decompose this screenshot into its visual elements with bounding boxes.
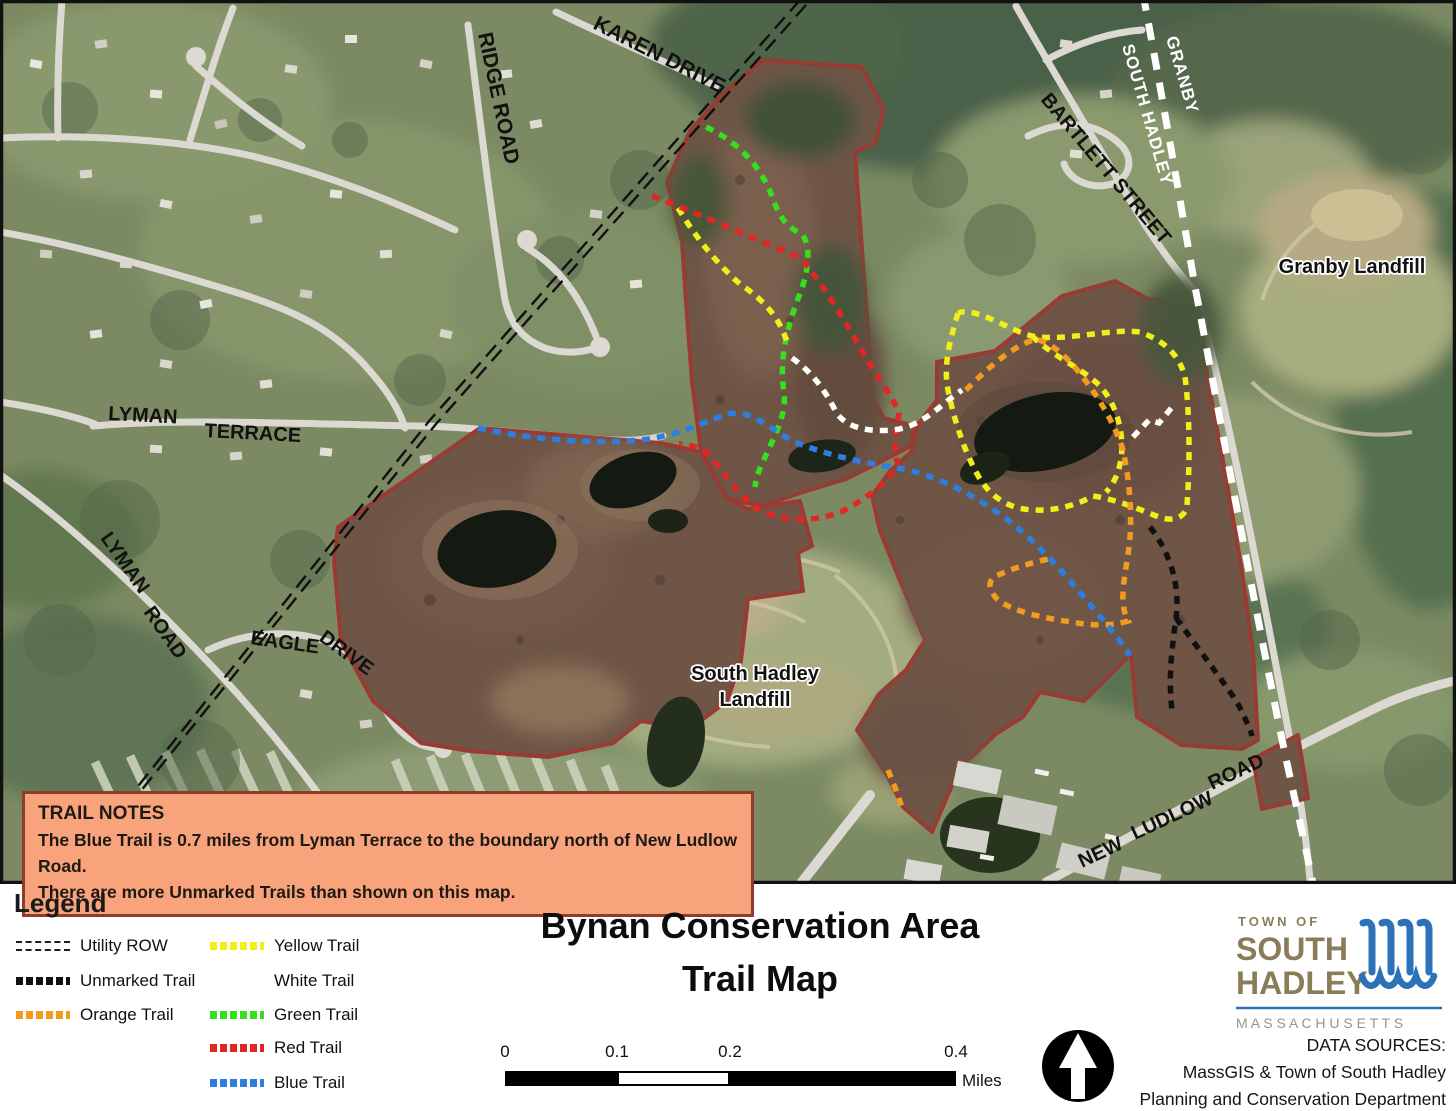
label-sh-landfill-1: South Hadley [691, 663, 820, 685]
blue-trail-swatch [210, 1079, 264, 1087]
data-sources-line3: Planning and Conservation Department [1050, 1086, 1446, 1111]
legend-label: White Trail [274, 971, 354, 991]
legend-label: Utility ROW [80, 936, 168, 956]
trail-notes-line2: There are more Unmarked Trails than show… [38, 879, 738, 905]
data-sources-line1: DATA SOURCES: [1050, 1032, 1446, 1059]
scale-segment-3 [730, 1071, 956, 1086]
data-sources: DATA SOURCES: MassGIS & Town of South Ha… [1050, 1032, 1446, 1111]
label-granby-landfill: Granby Landfill [1279, 256, 1426, 278]
yellow-trail-swatch [210, 942, 264, 950]
unmarked-trail-swatch [16, 977, 70, 985]
data-sources-line2: MassGIS & Town of South Hadley [1050, 1059, 1446, 1086]
map: KAREN DRIVE RIDGE ROAD BARTLETT STREET G… [0, 0, 1456, 884]
legend-item-green: Green Trail [210, 1005, 358, 1025]
white-trail-swatch [210, 977, 264, 985]
scale-unit: Miles [962, 1071, 1002, 1091]
map-title-line1: Bynan Conservation Area [380, 905, 1140, 947]
logo-south: SOUTH [1236, 931, 1348, 967]
pond-west-tiny [648, 509, 688, 533]
map-title-line2: Trail Map [380, 958, 1140, 1000]
legend-item-unmarked: Unmarked Trail [16, 971, 195, 991]
legend-label: Unmarked Trail [80, 971, 195, 991]
town-logo: TOWN OF SOUTH HADLEY M A S S A C H U S E… [1228, 906, 1450, 1032]
orange-trail-swatch [16, 1011, 70, 1019]
legend-item-blue: Blue Trail [210, 1073, 345, 1093]
trail-notes-line1: The Blue Trail is 0.7 miles from Lyman T… [38, 827, 738, 879]
legend-heading: Legend [14, 888, 106, 919]
scale-tick-0: 0 [475, 1042, 535, 1062]
scale-tick-02: 0.2 [700, 1042, 760, 1062]
legend-item-utility-row: Utility ROW [16, 936, 168, 956]
legend-label: Orange Trail [80, 1005, 174, 1025]
scale-tick-04: 0.4 [926, 1042, 986, 1062]
legend-label: Blue Trail [274, 1073, 345, 1093]
legend-label: Red Trail [274, 1038, 342, 1058]
legend-label: Green Trail [274, 1005, 358, 1025]
scale-segment-1 [505, 1071, 617, 1086]
legend-item-white: White Trail [210, 971, 354, 991]
scale-segment-2 [617, 1071, 730, 1086]
logo-hadley: HADLEY [1236, 965, 1368, 1001]
granby-pit [1311, 189, 1403, 241]
legend-item-orange: Orange Trail [16, 1005, 174, 1025]
page: KAREN DRIVE RIDGE ROAD BARTLETT STREET G… [0, 0, 1456, 1111]
logo-town-of: TOWN OF [1238, 914, 1320, 929]
legend-label: Yellow Trail [274, 936, 359, 956]
utility-row-swatch [16, 941, 70, 951]
legend-item-red: Red Trail [210, 1038, 342, 1058]
legend-item-yellow: Yellow Trail [210, 936, 359, 956]
green-trail-swatch [210, 1011, 264, 1019]
trail-notes-box: TRAIL NOTES The Blue Trail is 0.7 miles … [22, 791, 754, 917]
waterfall-icon [1362, 922, 1434, 985]
trail-notes-heading: TRAIL NOTES [38, 801, 738, 827]
map-canvas: KAREN DRIVE RIDGE ROAD BARTLETT STREET G… [0, 0, 1456, 884]
label-sh-landfill-2: Landfill [719, 689, 790, 711]
red-trail-swatch [210, 1044, 264, 1052]
scale-tick-01: 0.1 [587, 1042, 647, 1062]
logo-state: M A S S A C H U S E T T S [1236, 1015, 1403, 1031]
label-lyman: LYMAN [108, 403, 178, 429]
